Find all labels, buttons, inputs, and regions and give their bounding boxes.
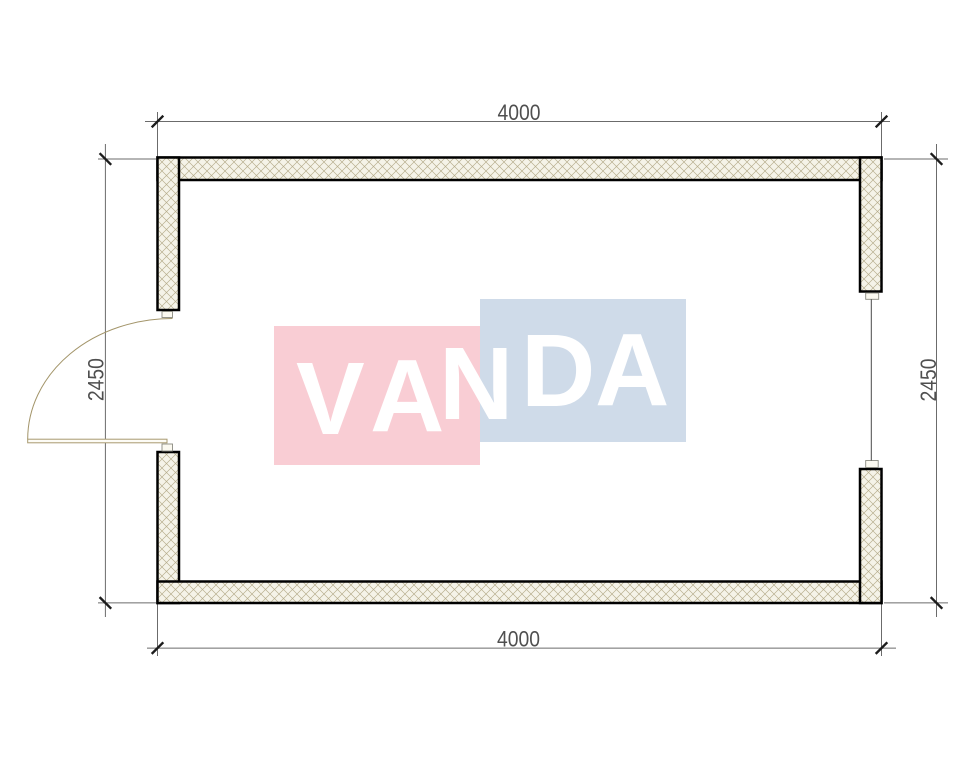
svg-text:N: N xyxy=(439,326,513,441)
svg-text:V: V xyxy=(296,341,365,456)
svg-text:D: D xyxy=(521,313,595,428)
svg-text:4000: 4000 xyxy=(498,100,541,125)
svg-text:2450: 2450 xyxy=(84,358,109,401)
svg-text:A: A xyxy=(370,338,444,453)
svg-text:A: A xyxy=(595,312,669,427)
svg-text:4000: 4000 xyxy=(497,626,540,651)
svg-text:2450: 2450 xyxy=(916,359,941,402)
